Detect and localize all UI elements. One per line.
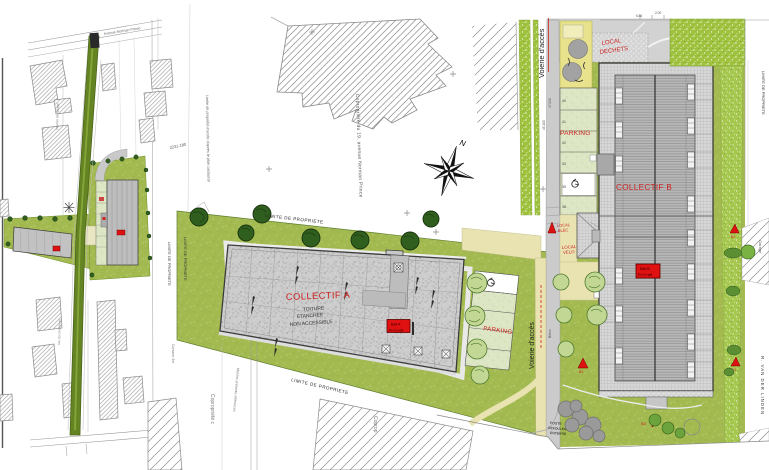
svg-text:41: 41 (562, 120, 566, 124)
svg-text:Coprop: Coprop (372, 416, 378, 433)
svg-text:2.00: 2.00 (655, 11, 661, 15)
svg-text:Garage: Garage (758, 240, 763, 254)
svg-text:COLLECTIF A: COLLECTIF A (286, 289, 351, 302)
svg-text:45.100: 45.100 (542, 120, 546, 130)
svg-text:Voierie d'accès: Voierie d'accès (537, 28, 546, 78)
svg-text:POSTE: POSTE (550, 421, 562, 426)
svg-text:6.86: 6.86 (636, 14, 642, 18)
svg-text:Corsaire 3m: Corsaire 3m (171, 344, 175, 363)
svg-text:LIMITE DE PROPRIETE: LIMITE DE PROPRIETE (761, 71, 766, 115)
svg-text:39: 39 (562, 185, 566, 189)
svg-text:Voierie d'accès: Voierie d'accès (529, 322, 536, 369)
svg-text:VELO: VELO (563, 249, 576, 255)
svg-text:R+2+att: R+2+att (638, 272, 653, 277)
svg-text:Bât B: Bât B (640, 266, 650, 271)
svg-text:COLLECTIF B: COLLECTIF B (616, 183, 672, 192)
svg-text:R+2+att: R+2+att (389, 328, 404, 333)
svg-text:38: 38 (562, 205, 566, 209)
svg-text:ELEC: ELEC (558, 227, 569, 233)
svg-text:42: 42 (562, 141, 566, 145)
svg-text:R. VAN DER LINDEN: R. VAN DER LINDEN (760, 356, 765, 415)
svg-text:Béton: Béton (548, 329, 552, 338)
svg-text:LIMITE DE PROPRIETE: LIMITE DE PROPRIETE (183, 237, 188, 281)
svg-text:Bât A: Bât A (391, 322, 401, 327)
svg-text:47.090: 47.090 (548, 98, 552, 108)
svg-text:B1: B1 (579, 370, 583, 374)
svg-text:Copropriété c: Copropriété c (209, 394, 215, 425)
svg-text:PARKING: PARKING (560, 130, 591, 137)
svg-text:43: 43 (562, 162, 566, 166)
svg-text:40: 40 (562, 99, 566, 103)
svg-text:LIMITE DE PROPRIETE: LIMITE DE PROPRIETE (167, 242, 172, 286)
svg-text:B2: B2 (731, 235, 735, 239)
svg-text:B3: B3 (641, 421, 647, 426)
